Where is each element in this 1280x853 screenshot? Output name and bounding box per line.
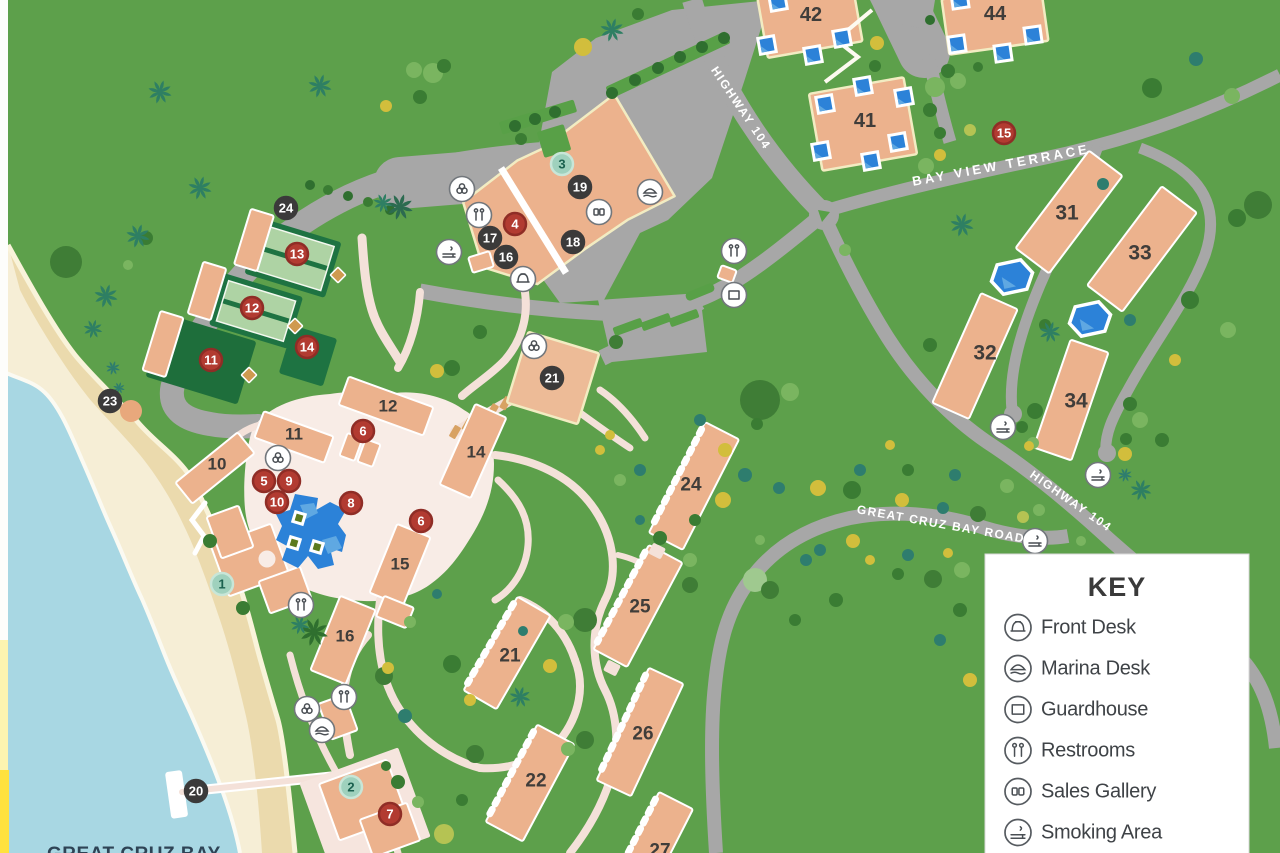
svg-text:Marina Desk: Marina Desk [1041, 658, 1151, 680]
svg-text:34: 34 [1064, 390, 1088, 413]
svg-text:20: 20 [189, 784, 203, 799]
svg-text:16: 16 [336, 627, 355, 646]
svg-text:Smoking Area: Smoking Area [1041, 822, 1163, 844]
svg-text:17: 17 [483, 231, 497, 246]
svg-text:22: 22 [525, 771, 546, 792]
svg-text:15: 15 [391, 555, 410, 574]
svg-text:5: 5 [260, 474, 267, 489]
svg-text:14: 14 [467, 443, 486, 462]
svg-text:12: 12 [379, 397, 398, 416]
svg-text:24: 24 [680, 475, 702, 496]
svg-text:42: 42 [800, 4, 822, 26]
svg-text:Restrooms: Restrooms [1041, 740, 1135, 762]
svg-text:3: 3 [558, 157, 565, 172]
svg-text:4: 4 [511, 217, 519, 232]
svg-text:Guardhouse: Guardhouse [1041, 699, 1148, 721]
svg-text:16: 16 [499, 250, 513, 265]
svg-text:14: 14 [300, 340, 315, 355]
svg-text:1: 1 [218, 577, 225, 592]
svg-text:7: 7 [386, 807, 393, 822]
svg-text:13: 13 [290, 247, 304, 262]
svg-text:2: 2 [347, 780, 354, 795]
svg-text:21: 21 [545, 371, 559, 386]
svg-text:23: 23 [103, 394, 117, 409]
svg-text:18: 18 [566, 235, 580, 250]
svg-text:41: 41 [854, 110, 876, 132]
svg-text:9: 9 [285, 474, 292, 489]
svg-text:11: 11 [285, 425, 303, 444]
svg-text:27: 27 [649, 841, 670, 853]
svg-text:21: 21 [499, 646, 521, 667]
svg-text:44: 44 [984, 3, 1007, 25]
svg-text:GREAT CRUZ BAY: GREAT CRUZ BAY [47, 844, 221, 853]
svg-text:11: 11 [204, 353, 218, 368]
svg-text:25: 25 [629, 597, 651, 618]
svg-text:26: 26 [632, 724, 653, 745]
svg-text:19: 19 [573, 180, 587, 195]
svg-text:12: 12 [245, 301, 259, 316]
svg-text:24: 24 [279, 201, 294, 216]
svg-text:33: 33 [1128, 242, 1151, 265]
svg-text:KEY: KEY [1088, 572, 1147, 602]
svg-text:6: 6 [359, 424, 366, 439]
svg-text:Sales Gallery: Sales Gallery [1041, 781, 1156, 803]
svg-text:15: 15 [997, 126, 1011, 141]
svg-text:6: 6 [417, 514, 424, 529]
svg-text:8: 8 [347, 496, 354, 511]
svg-text:31: 31 [1055, 202, 1079, 225]
svg-text:32: 32 [973, 342, 996, 365]
svg-text:10: 10 [208, 455, 227, 474]
svg-text:10: 10 [270, 495, 284, 510]
svg-text:Front Desk: Front Desk [1041, 617, 1137, 639]
